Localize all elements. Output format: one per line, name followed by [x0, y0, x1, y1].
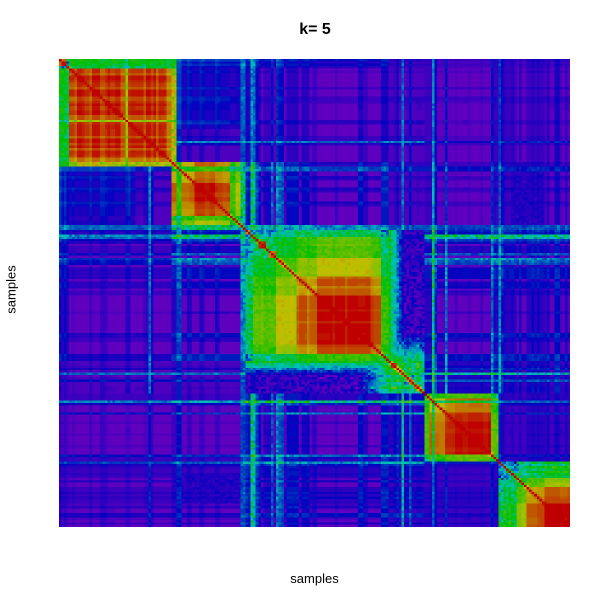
svg-text:k= 5: k= 5 — [299, 21, 331, 38]
svg-text:samples: samples — [290, 571, 339, 586]
svg-text:samples: samples — [4, 265, 19, 314]
